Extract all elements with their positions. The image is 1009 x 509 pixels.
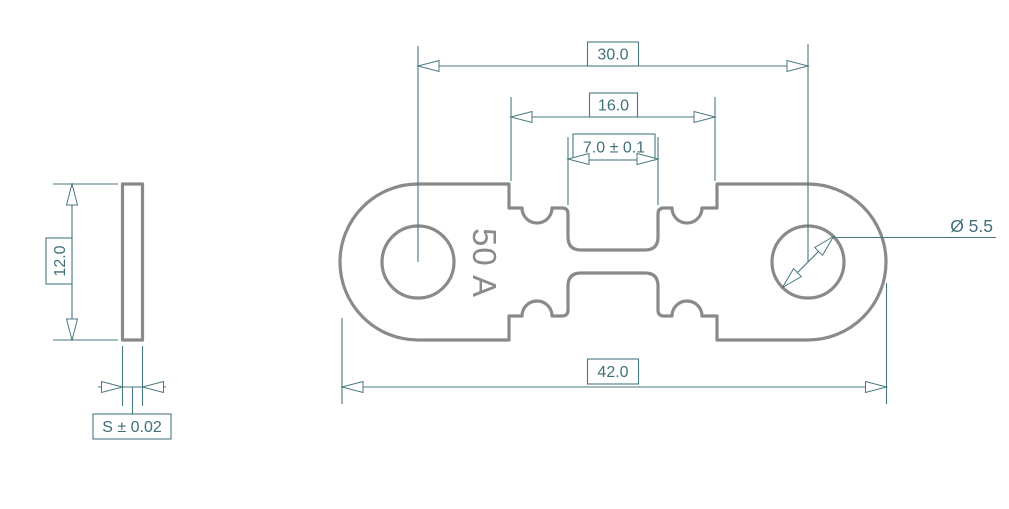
side-view	[123, 184, 143, 340]
hole-diameter-label: Ø 5.5	[950, 216, 993, 236]
amp-rating-label: 50 A	[466, 228, 503, 298]
arrowhead-up-icon	[67, 184, 78, 205]
thickness-label: S ± 0.02	[102, 419, 162, 436]
fuse-drawing: 12.0 S ± 0.02 50 A 30.0 16.0	[0, 0, 1009, 509]
arrowhead-right-icon	[866, 382, 887, 393]
overall-length-label: 42.0	[597, 364, 628, 381]
fuse-outline	[340, 184, 886, 340]
arrowhead-left-icon	[342, 382, 363, 393]
arrowhead-right-icon	[102, 382, 123, 393]
arrowhead-left-icon	[143, 382, 164, 393]
dim-overall-length: 42.0	[342, 283, 887, 404]
hole-spacing-label: 30.0	[597, 47, 628, 64]
arrowhead-right-icon	[694, 112, 715, 123]
dim-body-height: 12.0	[46, 184, 118, 340]
arrowhead-left-icon	[418, 61, 439, 72]
element-width-label: 7.0 ± 0.1	[583, 140, 645, 157]
top-view: 50 A	[340, 184, 886, 340]
body-height-label: 12.0	[52, 245, 69, 276]
side-view-profile	[123, 184, 143, 340]
dim-thickness: S ± 0.02	[93, 346, 171, 439]
dim-element-width: 7.0 ± 0.1	[568, 134, 658, 205]
arrowhead-left-icon	[511, 112, 532, 123]
technical-drawing-canvas: 12.0 S ± 0.02 50 A 30.0 16.0	[0, 0, 1009, 509]
narrow-width-label: 16.0	[598, 98, 629, 115]
arrowhead-right-icon	[787, 61, 808, 72]
arrowhead-down-icon	[67, 319, 78, 340]
